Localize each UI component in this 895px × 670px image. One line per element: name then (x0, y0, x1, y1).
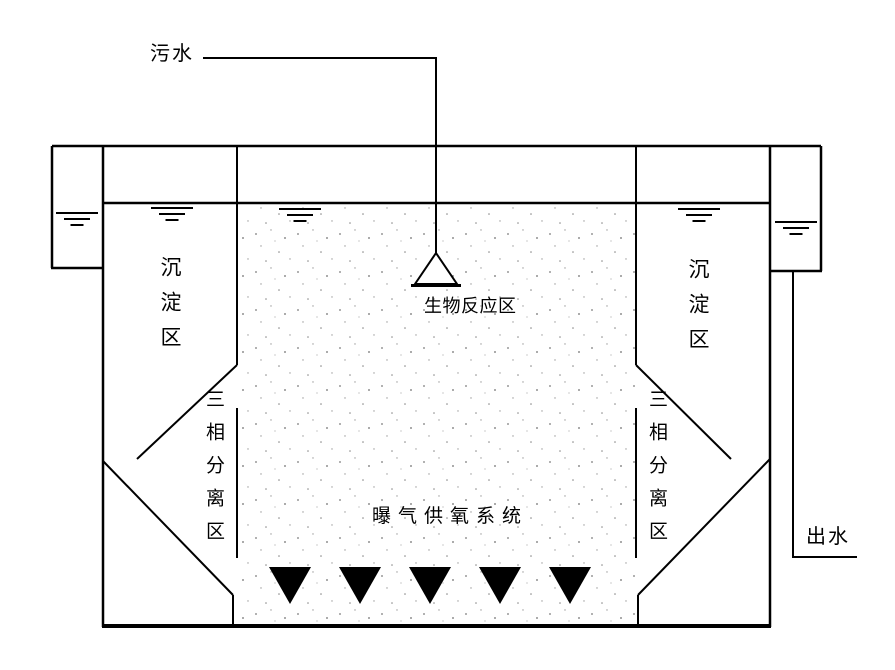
influent-label: 污水 (150, 44, 194, 64)
three-phase-separation-right-label: 三相分离区 (647, 389, 666, 554)
aeration-system-label: 曝气供氧系统 (372, 507, 528, 526)
right-trough (770, 146, 822, 271)
reactor-schematic: 污水 生物反应区 沉淀区 沉淀区 三相分离区 三相分离区 曝气供氧系统 出水 (0, 0, 895, 670)
sedimentation-zone-left-label: 沉淀区 (159, 256, 180, 361)
water-level-icon (151, 208, 193, 220)
bio-reaction-zone-label: 生物反应区 (424, 297, 517, 315)
sedimentation-zone-right-label: 沉淀区 (687, 258, 708, 363)
effluent-pipe (793, 271, 857, 557)
three-phase-separation-left-label: 三相分离区 (204, 389, 223, 554)
water-level-icon (775, 222, 817, 234)
effluent-label: 出水 (806, 527, 850, 547)
water-level-icon (56, 213, 98, 225)
water-level-icon (678, 209, 720, 221)
left-trough (51, 146, 103, 268)
tank-linework (0, 0, 895, 670)
